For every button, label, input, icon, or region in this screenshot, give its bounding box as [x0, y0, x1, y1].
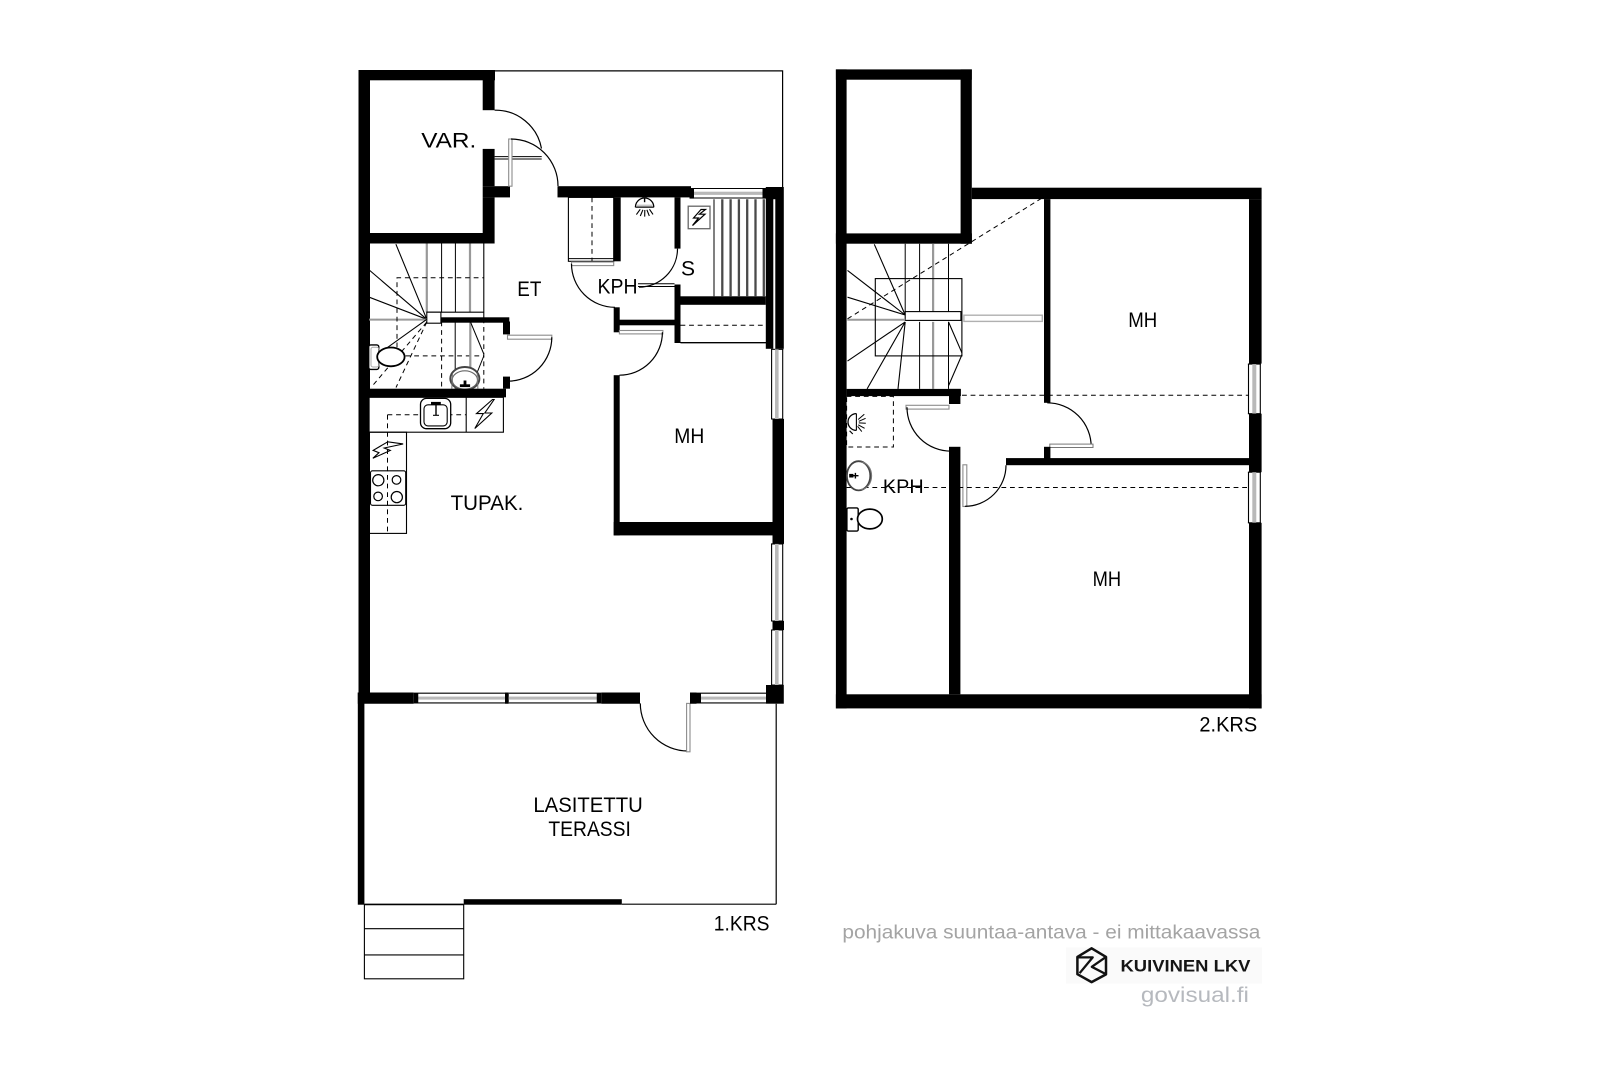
svg-text:LASITETTU: LASITETTU	[533, 794, 642, 817]
svg-text:MH: MH	[674, 425, 704, 448]
svg-text:ET: ET	[517, 278, 541, 301]
svg-text:KUIVINEN LKV: KUIVINEN LKV	[1121, 958, 1251, 976]
svg-text:KPH: KPH	[883, 476, 924, 498]
svg-text:govisual.fi: govisual.fi	[1141, 984, 1249, 1007]
svg-text:2.KRS: 2.KRS	[1199, 714, 1257, 737]
svg-text:1.KRS: 1.KRS	[714, 913, 770, 936]
svg-text:S: S	[681, 257, 695, 280]
svg-text:pohjakuva suuntaa-antava - ei: pohjakuva suuntaa-antava - ei mittakaava…	[842, 922, 1260, 944]
svg-text:MH: MH	[1128, 309, 1157, 332]
svg-text:KPH: KPH	[598, 276, 638, 299]
svg-text:MH: MH	[1093, 568, 1122, 591]
svg-text:TUPAK.: TUPAK.	[451, 492, 524, 515]
svg-text:TERASSI: TERASSI	[548, 818, 631, 841]
svg-text:VAR.: VAR.	[421, 130, 476, 153]
